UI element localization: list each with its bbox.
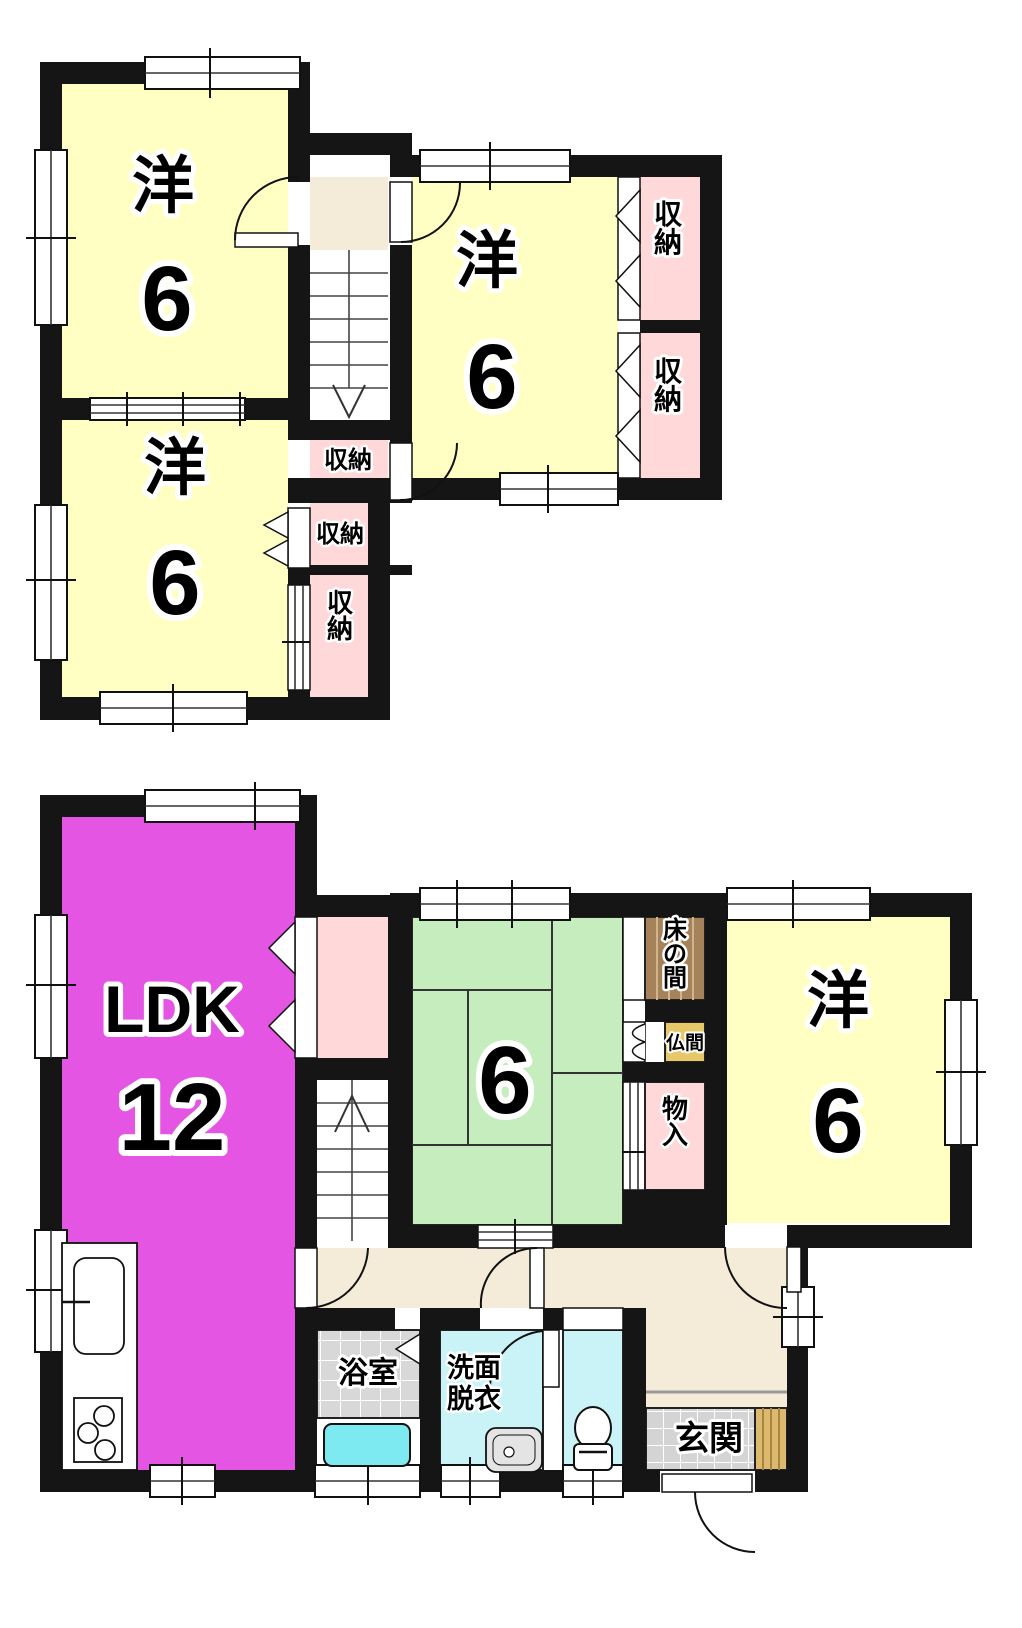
door-toilet: [563, 1308, 623, 1330]
butsuma-label: 仏間: [666, 1032, 704, 1054]
room-nw-type: 洋: [132, 152, 194, 221]
stair-hall-2f: [310, 177, 388, 250]
monoire-front-strip: [623, 1082, 645, 1190]
washroom-label-2: 脱衣: [447, 1383, 501, 1414]
room-sw-type: 洋: [144, 434, 206, 503]
closet-mid-top-label: 収納: [324, 446, 372, 474]
hallway: [317, 1248, 787, 1308]
window: [420, 880, 570, 928]
window: [150, 1457, 215, 1505]
closet-ldk: [317, 917, 388, 1058]
tokonoma-front-strip: [623, 917, 645, 1000]
window: [145, 782, 300, 830]
interior-opening: [90, 392, 245, 426]
window: [727, 880, 870, 928]
closet-mid-middle-label: 収納: [316, 520, 364, 548]
ldk-size: 12: [119, 1064, 226, 1171]
washroom-label-1: 洗面: [447, 1353, 501, 1383]
window: [420, 142, 570, 190]
toilet: [574, 1407, 612, 1470]
closet-right-top-label: 収納: [654, 199, 683, 258]
window: [100, 684, 247, 732]
tokonoma-label: 床の間: [663, 916, 687, 992]
bathtub: [324, 1424, 410, 1466]
room-e-size: 6: [812, 1070, 863, 1172]
kitchen-counter: [62, 1243, 137, 1470]
kitchen-sink: [74, 1258, 124, 1354]
room-sw-size: 6: [149, 532, 200, 634]
monoire-label: 物入: [662, 1094, 688, 1150]
room-mid-type: 洋: [456, 227, 518, 296]
closet-mid-bottom-label: 収納: [327, 588, 354, 644]
room-mid-size: 6: [466, 326, 517, 428]
entrance-label: 玄関: [675, 1420, 743, 1458]
window: [500, 465, 618, 513]
entrance-step-wood: [755, 1408, 787, 1470]
ldk-label: LDK: [104, 972, 240, 1046]
room-e-type: 洋: [807, 967, 869, 1036]
tatami-size: 6: [478, 1027, 531, 1134]
floor-plan: 洋 6 洋 6 洋 6 収納 収納 収納 収納 収納: [0, 0, 1022, 1628]
closet-right-bottom-label: 収納: [654, 356, 683, 415]
bath-label: 浴室: [338, 1356, 398, 1390]
wash-basin: [486, 1428, 542, 1472]
room-nw-size: 6: [141, 248, 192, 350]
